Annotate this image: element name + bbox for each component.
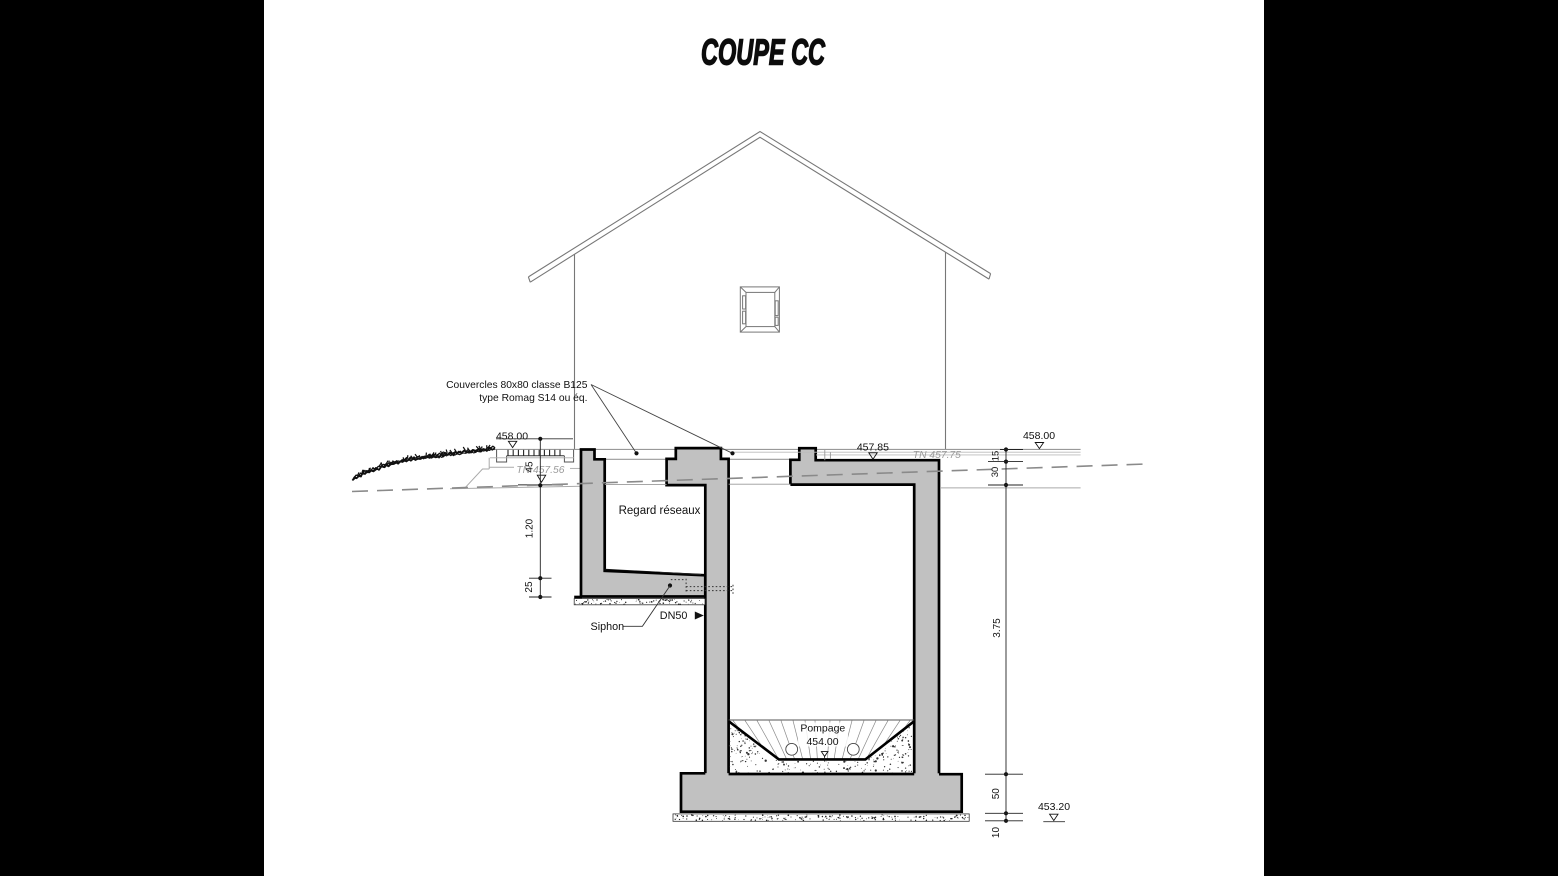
svg-text:454.00: 454.00: [806, 736, 838, 748]
svg-text:Pompage: Pompage: [800, 723, 845, 735]
svg-text:3.75: 3.75: [992, 618, 1003, 638]
svg-text:10: 10: [991, 827, 1002, 839]
svg-text:1.20: 1.20: [525, 518, 536, 538]
svg-text:457.85: 457.85: [857, 441, 889, 453]
svg-text:453.20: 453.20: [1038, 801, 1070, 813]
svg-text:DN50: DN50: [660, 610, 688, 622]
svg-text:Siphon: Siphon: [591, 621, 625, 633]
svg-text:50: 50: [991, 788, 1002, 800]
svg-text:458.00: 458.00: [496, 431, 528, 443]
svg-text:Regard réseaux: Regard réseaux: [619, 505, 701, 517]
svg-text:type Romag S14 ou éq.: type Romag S14 ou éq.: [479, 393, 587, 404]
svg-text:45: 45: [525, 461, 536, 473]
svg-text:30: 30: [990, 467, 1001, 478]
svg-text:15: 15: [991, 451, 1002, 462]
svg-text:COUPE CC: COUPE CC: [701, 32, 826, 73]
svg-text:458.00: 458.00: [1023, 430, 1055, 442]
svg-text:Couvercles 80x80 classe B125: Couvercles 80x80 classe B125: [446, 380, 588, 391]
svg-text:25: 25: [524, 581, 535, 593]
svg-text:TN 457.75: TN 457.75: [913, 450, 961, 461]
